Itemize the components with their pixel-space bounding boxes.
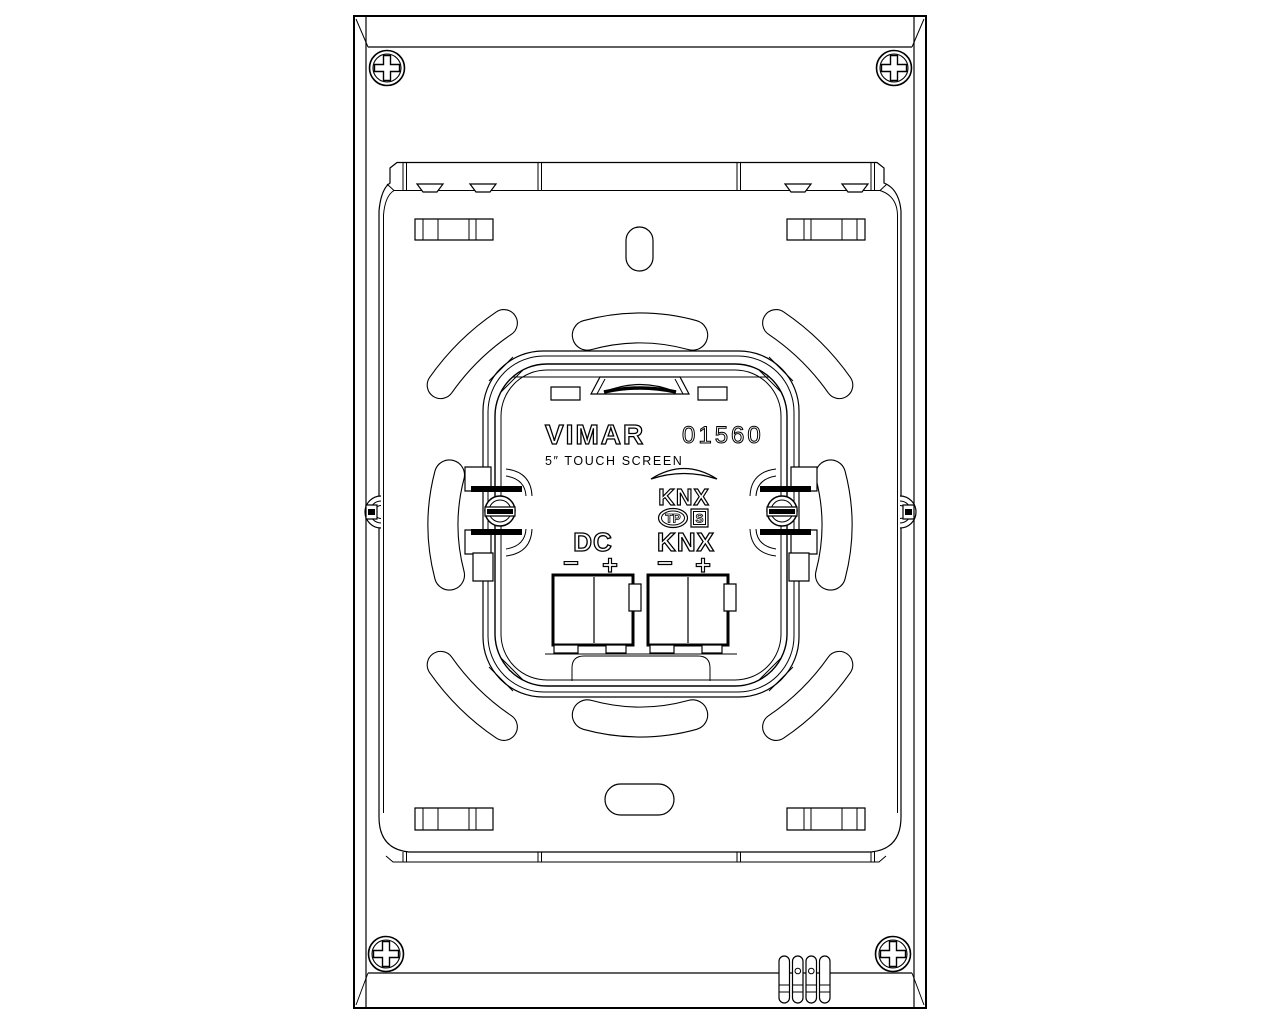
- knx-s-badge: S: [691, 509, 708, 527]
- product-name-text: 5″ TOUCH SCREEN: [545, 454, 683, 468]
- technical-drawing-page: VIMAR 01560 5″ TOUCH SCREEN KNX TP S DC …: [0, 0, 1280, 1024]
- oval-hole-top: [626, 227, 653, 271]
- kidney-slot: [572, 700, 707, 737]
- mounting-slot-top-right: [787, 219, 865, 240]
- central-module: [495, 364, 787, 686]
- mounting-slot-bottom-right: [787, 808, 865, 830]
- kidney-slot: [427, 651, 517, 740]
- kidney-slot: [816, 460, 853, 590]
- corner-screw-top-left: [370, 51, 405, 86]
- knx-tp-badge: TP: [659, 509, 688, 528]
- module-top-clip-left: [551, 387, 580, 400]
- vimar-logo-text: VIMAR: [545, 419, 645, 450]
- side-screw-left: [365, 496, 381, 528]
- oval-hole-bottom: [605, 784, 674, 815]
- knx-terminal-block: [648, 575, 736, 645]
- article-number: 01560: [682, 422, 764, 449]
- kidney-slot: [428, 460, 465, 590]
- kidney-slot: [427, 310, 517, 399]
- corner-screw-top-right: [877, 51, 912, 86]
- knx-tp-text: TP: [665, 512, 680, 526]
- knx-s-text: S: [695, 512, 703, 526]
- module-top-latch: [591, 377, 689, 394]
- knx-logo-text: KNX: [658, 484, 710, 510]
- kidney-slot: [572, 313, 707, 350]
- module-top-clip-right: [698, 387, 727, 400]
- mounting-slot-top-left: [415, 219, 493, 240]
- bottom-rail-ticks: [403, 852, 875, 862]
- corner-screw-bottom-right: [876, 937, 911, 972]
- drawing-canvas: VIMAR 01560 5″ TOUCH SCREEN KNX TP S DC …: [0, 0, 1280, 1024]
- mounting-slot-bottom-left: [415, 808, 493, 830]
- vent-slots: [779, 956, 830, 1003]
- dc-terminal-block: [553, 575, 641, 645]
- corner-screw-bottom-left: [369, 937, 404, 972]
